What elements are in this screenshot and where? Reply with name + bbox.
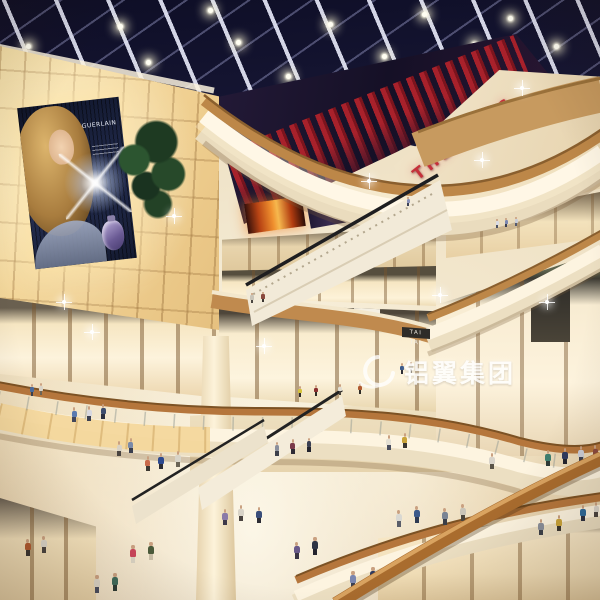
watermark-text: 铝翼集团	[404, 354, 516, 390]
watermark: 铝翼集团	[358, 352, 516, 392]
handrail-wood	[336, 458, 600, 600]
mall-atrium-rendering: THEATRES GUERLAIN TAI TAI	[0, 0, 600, 600]
foreground-handrail	[0, 0, 600, 600]
swirl-logo-icon	[358, 352, 398, 392]
